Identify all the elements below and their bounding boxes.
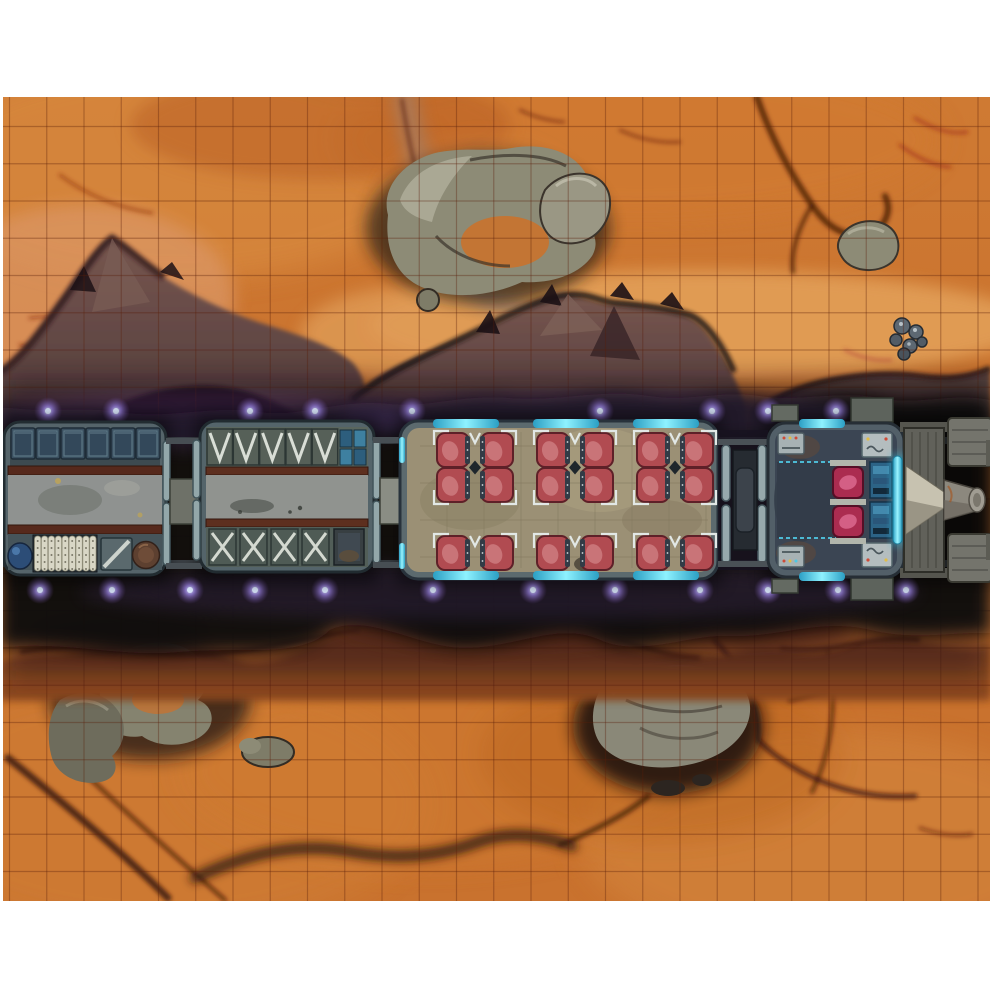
cylinder-rivet (85, 554, 87, 556)
seat-frame-bar (830, 460, 866, 466)
pebble (417, 289, 439, 311)
cylinder-rivet (64, 568, 66, 570)
armrest-dot (482, 544, 484, 546)
cylinder-rivet (44, 554, 46, 556)
pipe-rack-cylinders (35, 536, 97, 571)
cylinder-rivet (37, 554, 39, 556)
coupler-bar (722, 445, 730, 501)
cylinder-rivet (51, 547, 53, 549)
cylinder-rivet (92, 554, 94, 556)
coupler-bar (193, 500, 200, 560)
cylinder-rivet (37, 561, 39, 563)
cylinder-rivet (44, 547, 46, 549)
armrest-dot (667, 476, 669, 478)
cylinder-rivet (92, 561, 94, 563)
armrest-dot (682, 457, 684, 459)
cylinder-rivet (37, 547, 39, 549)
coupler-bar (373, 439, 380, 499)
coupler-bar (163, 441, 170, 501)
cylinder-rivet (85, 540, 87, 542)
cyan-roof-strip (799, 572, 845, 581)
cylinder-rivet (71, 540, 73, 542)
side-console (862, 433, 892, 457)
cylinder-rivet (85, 561, 87, 563)
margin-top (0, 0, 1000, 97)
armrest-dot (467, 449, 469, 451)
cylinder-rivet (71, 547, 73, 549)
glow-core (709, 408, 715, 414)
roof-vent (772, 579, 798, 593)
flatbed-floor (206, 475, 368, 519)
battle-map-image (0, 0, 1000, 1000)
armrest-dot (667, 441, 669, 443)
armrest-dot (482, 484, 484, 486)
armrest-dot (582, 484, 584, 486)
glow-core (252, 587, 258, 593)
crate-panel (89, 431, 107, 456)
coupler-bar (758, 505, 766, 563)
armrest-dot (582, 457, 584, 459)
cylinder-rivet (92, 547, 94, 549)
crate-panel (39, 431, 57, 456)
cylinder-rivet (57, 568, 59, 570)
rust-rail (8, 466, 162, 475)
crate-panel (139, 431, 157, 456)
cargo-crate-row (11, 428, 160, 459)
glow-core (597, 408, 603, 414)
armrest-dot (567, 476, 569, 478)
armrest-dot (482, 449, 484, 451)
flatbed-car (193, 421, 402, 572)
armrest-dot (467, 560, 469, 562)
dark-crate (334, 529, 364, 565)
cylinder-rivet (44, 561, 46, 563)
armrest-dot (582, 544, 584, 546)
seat-frame-bar (830, 499, 866, 505)
glow-core (247, 408, 253, 414)
cylinder-rivet (51, 540, 53, 542)
cylinder-rivet (78, 561, 80, 563)
armrest-dot (467, 544, 469, 546)
cylinder-rivet (64, 554, 66, 556)
glow-core (765, 587, 771, 593)
cylinder-rivet (51, 554, 53, 556)
crate-panel (114, 431, 132, 456)
cylinder-rivet (78, 547, 80, 549)
armrest-dot (467, 492, 469, 494)
armrest-dot (482, 441, 484, 443)
cylinder-rivet (71, 568, 73, 570)
glow-core (697, 587, 703, 593)
cylinder-rivet (71, 561, 73, 563)
engine-nose (900, 418, 996, 582)
cyan-edge-strip (399, 437, 405, 463)
glow-core (45, 408, 51, 414)
corner-console (778, 546, 804, 567)
coupler-bar (163, 503, 170, 565)
cylinder-rivet (51, 568, 53, 570)
blue-sack (8, 543, 32, 569)
glow-core (322, 587, 328, 593)
armrest-dot (682, 476, 684, 478)
cylinder-rivet (51, 561, 53, 563)
roof-module (851, 398, 893, 422)
armrest-dot (567, 552, 569, 554)
cylinder-rivet (44, 540, 46, 542)
coupler-bar (193, 440, 200, 498)
glow-core (530, 587, 536, 593)
coupler-bar (373, 501, 380, 563)
armrest-dot (667, 492, 669, 494)
cylinder-rivet (44, 568, 46, 570)
cyan-edge-strip (399, 543, 405, 569)
entry-deck (777, 462, 835, 538)
cylinder-rivet (78, 568, 80, 570)
armrest-dot (582, 449, 584, 451)
glow-core (409, 408, 415, 414)
margin-left (0, 0, 3, 1000)
passenger-car (399, 419, 718, 580)
cylinder-rivet (57, 554, 59, 556)
cylinder-rivet (92, 568, 94, 570)
armrest-dot (667, 484, 669, 486)
armrest-dot (567, 441, 569, 443)
cylinder-rivet (85, 568, 87, 570)
glow-core (835, 587, 841, 593)
glow-core (113, 408, 119, 414)
armrest-dot (667, 552, 669, 554)
glow-core (833, 408, 839, 414)
corner-console (778, 433, 804, 454)
margin-bottom (0, 901, 1000, 1000)
armrest-dot (582, 552, 584, 554)
cylinder-rivet (64, 540, 66, 542)
cylinder-rivet (57, 547, 59, 549)
armrest-dot (467, 457, 469, 459)
cylinder-rivet (78, 540, 80, 542)
armrest-dot (482, 560, 484, 562)
cylinder-rivet (64, 561, 66, 563)
armrest-dot (582, 476, 584, 478)
armrest-dot (467, 484, 469, 486)
crate-panel (14, 431, 32, 456)
cylinder-rivet (37, 540, 39, 542)
armrest-dot (582, 441, 584, 443)
console-panel-blue (870, 502, 892, 538)
cyan-roof-strip (799, 419, 845, 428)
glow-core (187, 587, 193, 593)
armrest-dot (667, 560, 669, 562)
rock-top-right (838, 221, 898, 270)
armrest-dot (682, 560, 684, 562)
roof-module (851, 578, 893, 600)
armrest-dot (567, 492, 569, 494)
cyan-roof-strip (633, 419, 699, 428)
armrest-dot (482, 552, 484, 554)
cylinder-rivet (85, 547, 87, 549)
cylinder-rivet (92, 540, 94, 542)
armrest-dot (467, 441, 469, 443)
cyan-roof-strip (633, 571, 699, 580)
cyan-roof-strip (533, 419, 599, 428)
coupler-bar (758, 445, 766, 501)
cyan-door-bar (893, 456, 902, 544)
barrel (133, 542, 160, 569)
armrest-dot (582, 560, 584, 562)
armrest-dot (482, 492, 484, 494)
armrest-dot (667, 544, 669, 546)
armrest-dot (582, 492, 584, 494)
armrest-dot (682, 449, 684, 451)
armrest-dot (667, 449, 669, 451)
rust-rail (8, 525, 162, 534)
cyan-roof-strip (433, 571, 499, 580)
coupler-knuckle (736, 468, 754, 532)
cylinder-rivet (71, 554, 73, 556)
armrest-dot (482, 457, 484, 459)
glow-core (903, 587, 909, 593)
armrest-dot (682, 484, 684, 486)
armrest-dot (567, 449, 569, 451)
armrest-dot (682, 544, 684, 546)
glow-core (312, 408, 318, 414)
margin-right (990, 0, 1000, 1000)
armrest-dot (682, 492, 684, 494)
coupler-bar (722, 505, 730, 563)
console-panel-blue (870, 462, 892, 498)
armrest-dot (682, 552, 684, 554)
cyan-roof-strip (433, 419, 499, 428)
crate-panel (64, 431, 82, 456)
armrest-dot (567, 457, 569, 459)
glow-core (430, 587, 436, 593)
seat-frame-bar (830, 538, 866, 544)
cylinder-rivet (64, 547, 66, 549)
side-console (862, 543, 892, 567)
armrest-dot (567, 484, 569, 486)
armrest-dot (467, 552, 469, 554)
glow-core (765, 408, 771, 414)
cylinder-rivet (37, 568, 39, 570)
train (0, 397, 996, 604)
cylinder-rivet (57, 540, 59, 542)
armrest-dot (467, 476, 469, 478)
armrest-dot (567, 560, 569, 562)
armrest-dot (482, 476, 484, 478)
roof-vent (772, 405, 798, 421)
armrest-dot (567, 544, 569, 546)
battle-map-page (0, 0, 1000, 1000)
rust-rail (206, 467, 368, 475)
ramp-panel-row (207, 429, 338, 465)
cylinder-rivet (78, 554, 80, 556)
cylinder-rivet (57, 561, 59, 563)
armrest-dot (682, 441, 684, 443)
cyan-roof-strip (533, 571, 599, 580)
glow-core (37, 587, 43, 593)
striped-crate (101, 538, 132, 570)
glow-core (109, 587, 115, 593)
rust-rail (206, 519, 368, 527)
armrest-dot (667, 457, 669, 459)
glow-core (612, 587, 618, 593)
